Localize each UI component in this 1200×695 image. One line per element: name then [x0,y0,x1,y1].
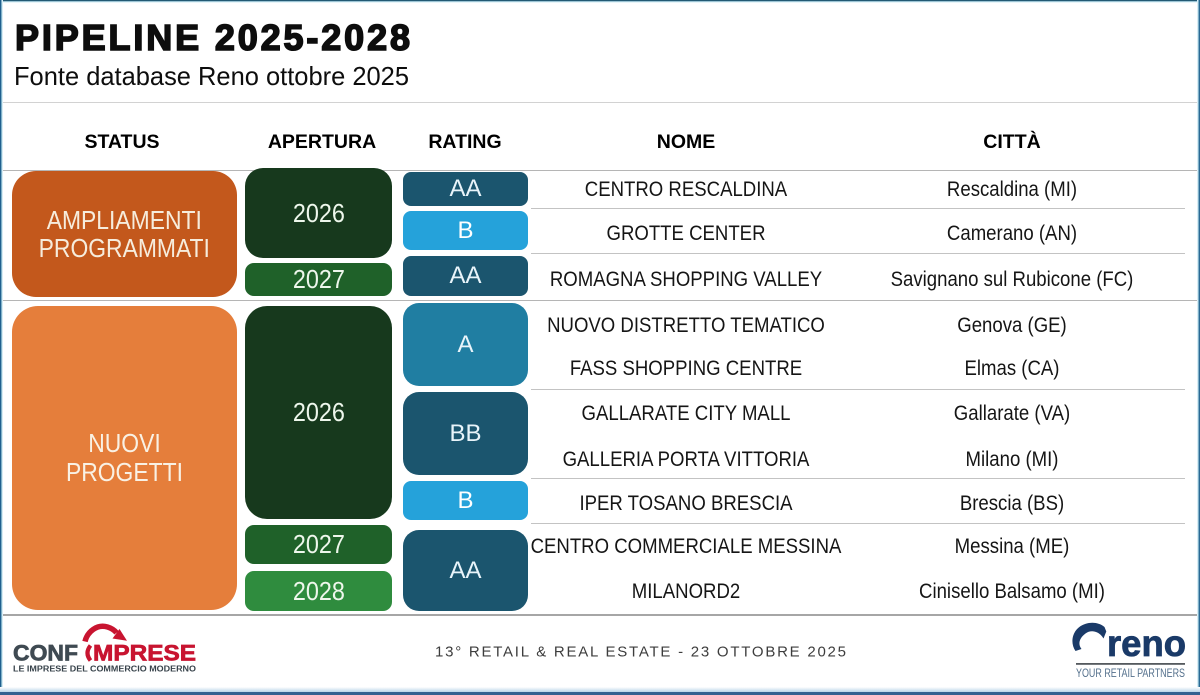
svg-text:MPRESE: MPRESE [93,641,196,666]
svg-text:CONF: CONF [13,641,78,666]
svg-text:YOUR RETAIL PARTNERS: YOUR RETAIL PARTNERS [1076,666,1185,680]
svg-text:13° RETAIL & REAL ESTATE - 23: 13° RETAIL & REAL ESTATE - 23 OTTOBRE 20… [435,644,846,661]
svg-text:reno: reno [1107,623,1186,664]
svg-text:LE IMPRESE DEL COMMERCIO MODER: LE IMPRESE DEL COMMERCIO MODERNO [13,664,196,674]
svg-text:PIPELINE 2025-2028: PIPELINE 2025-2028 [15,17,410,58]
svg-text:Fonte database Reno ottobre 20: Fonte database Reno ottobre 2025 [14,61,409,91]
